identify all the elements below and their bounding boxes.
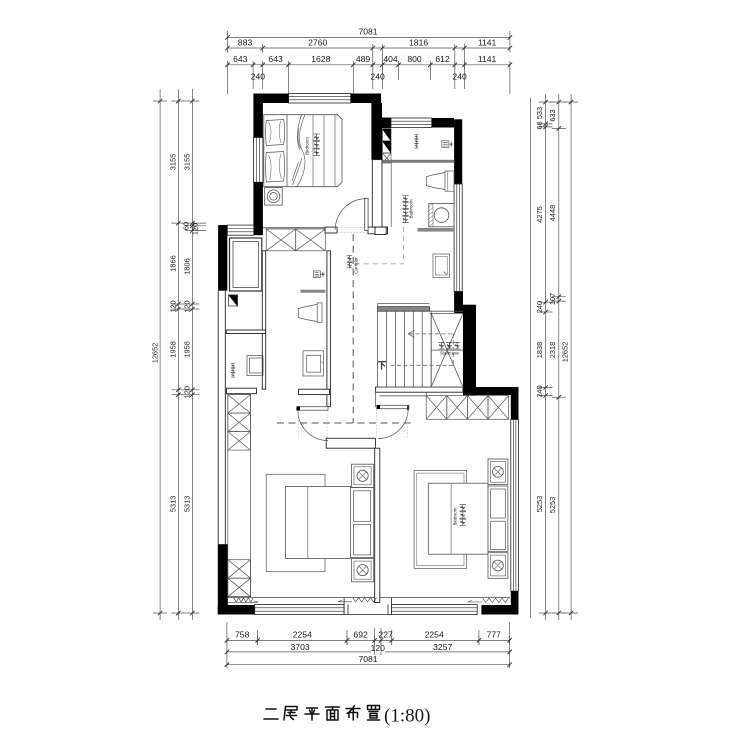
svg-text:7081: 7081 xyxy=(358,654,377,664)
svg-text:1141: 1141 xyxy=(478,38,497,48)
svg-text:643: 643 xyxy=(268,54,283,64)
svg-text:1958: 1958 xyxy=(183,341,192,357)
svg-text:5313: 5313 xyxy=(169,496,178,512)
svg-text:489: 489 xyxy=(356,54,371,64)
svg-text:5313: 5313 xyxy=(183,496,192,512)
svg-text:3155: 3155 xyxy=(183,154,192,170)
svg-text:643: 643 xyxy=(233,54,248,64)
svg-text:777: 777 xyxy=(487,630,502,640)
svg-text:240: 240 xyxy=(452,72,467,82)
svg-text:4448: 4448 xyxy=(548,205,557,221)
svg-text:240: 240 xyxy=(535,301,544,313)
svg-text:2254: 2254 xyxy=(425,630,444,640)
svg-text:3155: 3155 xyxy=(169,154,178,170)
svg-text:800: 800 xyxy=(407,54,422,64)
svg-text:533: 533 xyxy=(535,107,544,119)
svg-text:7081: 7081 xyxy=(358,27,377,37)
svg-text:240: 240 xyxy=(535,385,544,397)
svg-text:4275: 4275 xyxy=(535,206,544,222)
svg-text:1141: 1141 xyxy=(478,54,497,64)
svg-text:227: 227 xyxy=(378,630,393,640)
svg-text:1838: 1838 xyxy=(535,342,544,358)
svg-text:2318: 2318 xyxy=(548,342,557,358)
svg-text:240: 240 xyxy=(370,72,385,82)
svg-text:240: 240 xyxy=(251,72,266,82)
svg-text:1806: 1806 xyxy=(183,258,192,274)
svg-text:Corridor: Corridor xyxy=(354,257,359,274)
svg-text:3703: 3703 xyxy=(291,642,310,652)
svg-text:3257: 3257 xyxy=(433,642,452,652)
svg-text:Bedroom: Bedroom xyxy=(305,137,310,155)
svg-text:120: 120 xyxy=(371,643,386,653)
svg-text:1866: 1866 xyxy=(169,255,178,271)
svg-text:758: 758 xyxy=(235,630,250,640)
svg-text:12652: 12652 xyxy=(560,342,569,363)
svg-text:1628: 1628 xyxy=(311,54,330,64)
svg-text:1958: 1958 xyxy=(169,341,178,357)
svg-text:(1:80): (1:80) xyxy=(384,706,430,727)
svg-text:12652: 12652 xyxy=(150,343,159,364)
svg-text:5253: 5253 xyxy=(548,497,557,513)
svg-text:107: 107 xyxy=(548,293,557,305)
svg-text:692: 692 xyxy=(353,630,368,640)
svg-text:Bedroom: Bedroom xyxy=(453,507,458,525)
svg-text:2254: 2254 xyxy=(293,630,312,640)
svg-text:66: 66 xyxy=(535,121,544,129)
svg-text:883: 883 xyxy=(238,38,253,48)
svg-text:633: 633 xyxy=(548,109,557,121)
svg-text:404: 404 xyxy=(383,54,398,64)
svg-text:1816: 1816 xyxy=(409,38,428,48)
svg-text:60: 60 xyxy=(182,222,191,230)
svg-text:612: 612 xyxy=(435,54,450,64)
svg-text:2760: 2760 xyxy=(308,38,327,48)
svg-text:Staircase: Staircase xyxy=(440,351,460,356)
svg-text:120: 120 xyxy=(191,223,200,235)
svg-text:5253: 5253 xyxy=(535,496,544,512)
svg-text:Bathroom: Bathroom xyxy=(409,199,414,218)
